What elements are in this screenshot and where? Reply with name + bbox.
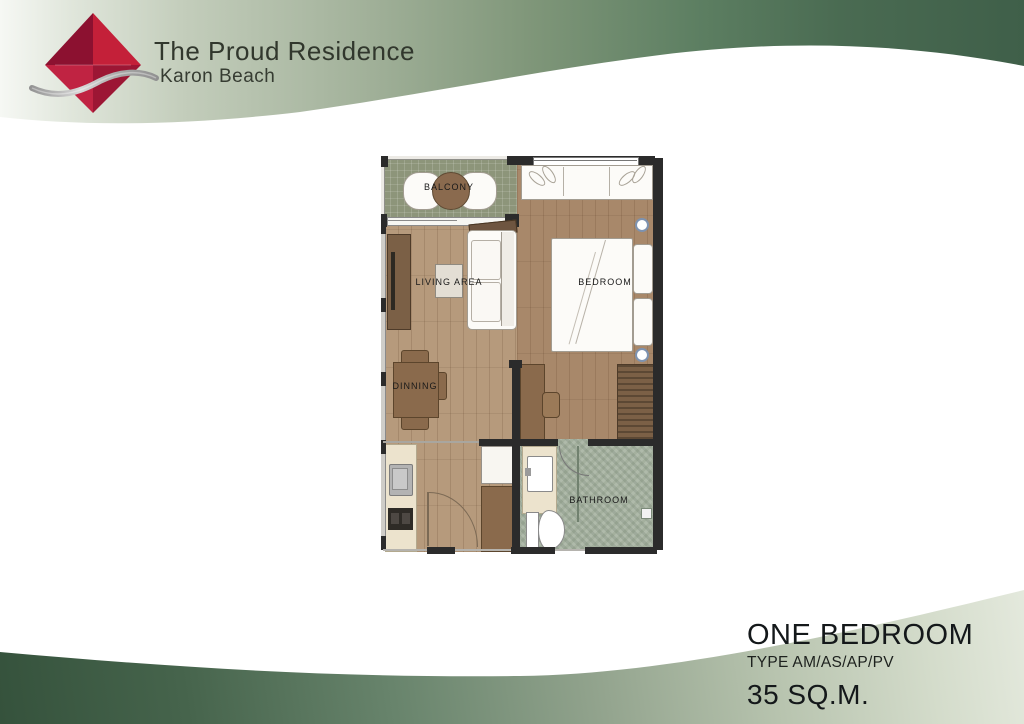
brand-title: The Proud Residence xyxy=(154,36,415,67)
corridor-cabinet xyxy=(481,486,515,552)
bathroom-wall xyxy=(588,439,655,446)
shower-drain-icon xyxy=(641,508,652,519)
room-label-bedroom: BEDROOM xyxy=(565,278,645,287)
wave-swoosh-icon xyxy=(28,66,160,102)
nightstand xyxy=(633,298,653,346)
left-wall-column xyxy=(381,536,386,550)
wall-light-icon xyxy=(635,348,649,362)
room-label-balcony: BALCONY xyxy=(415,183,483,192)
room-label-bathroom: BATHROOM xyxy=(557,496,641,505)
left-wall-column xyxy=(381,298,386,312)
room-label-living: LIVING AREA xyxy=(399,278,499,287)
wall-light-icon xyxy=(635,218,649,232)
right-wall xyxy=(653,158,663,550)
partition-cap xyxy=(509,360,522,368)
floor-plan: BALCONY LIVING AREA BEDROOM DINNING BATH… xyxy=(381,156,667,556)
stove-burner xyxy=(402,513,410,524)
window-mullion xyxy=(533,160,637,161)
kitchen-edge-line xyxy=(383,441,479,443)
brand-subtitle: Karon Beach xyxy=(160,66,275,88)
bed xyxy=(551,238,633,352)
kitchen-sink-basin xyxy=(392,468,408,490)
left-wall-column xyxy=(381,220,386,234)
closet-divider xyxy=(563,167,564,196)
room-label-dining: DINNING xyxy=(387,382,443,391)
tv xyxy=(391,252,395,310)
bottom-wall xyxy=(585,547,657,554)
page: The Proud Residence Karon Beach xyxy=(0,0,1024,724)
unit-name: ONE BEDROOM xyxy=(747,619,973,652)
wardrobe xyxy=(617,364,657,446)
sofa-cushion xyxy=(471,240,501,280)
fridge xyxy=(481,446,515,484)
sofa-cushion xyxy=(471,282,501,322)
column xyxy=(381,156,388,167)
partition-wall xyxy=(512,362,520,552)
sofa-back xyxy=(501,232,514,326)
desk-chair xyxy=(542,392,560,418)
left-wall-column xyxy=(381,372,386,386)
sliding-door-track xyxy=(387,220,457,221)
unit-area: 35 SQ.M. xyxy=(747,679,973,711)
faucet-icon xyxy=(525,468,531,476)
unit-info: ONE BEDROOM TYPE AM/AS/AP/PV 35 SQ.M. xyxy=(747,619,973,711)
balcony-railing-top xyxy=(383,156,517,160)
unit-type: TYPE AM/AS/AP/PV xyxy=(747,654,973,672)
closet-divider xyxy=(609,167,610,196)
bottom-wall xyxy=(427,547,455,554)
kitchen-counter xyxy=(385,444,417,552)
bathroom-wall xyxy=(479,439,558,446)
stove-burner xyxy=(391,513,399,524)
